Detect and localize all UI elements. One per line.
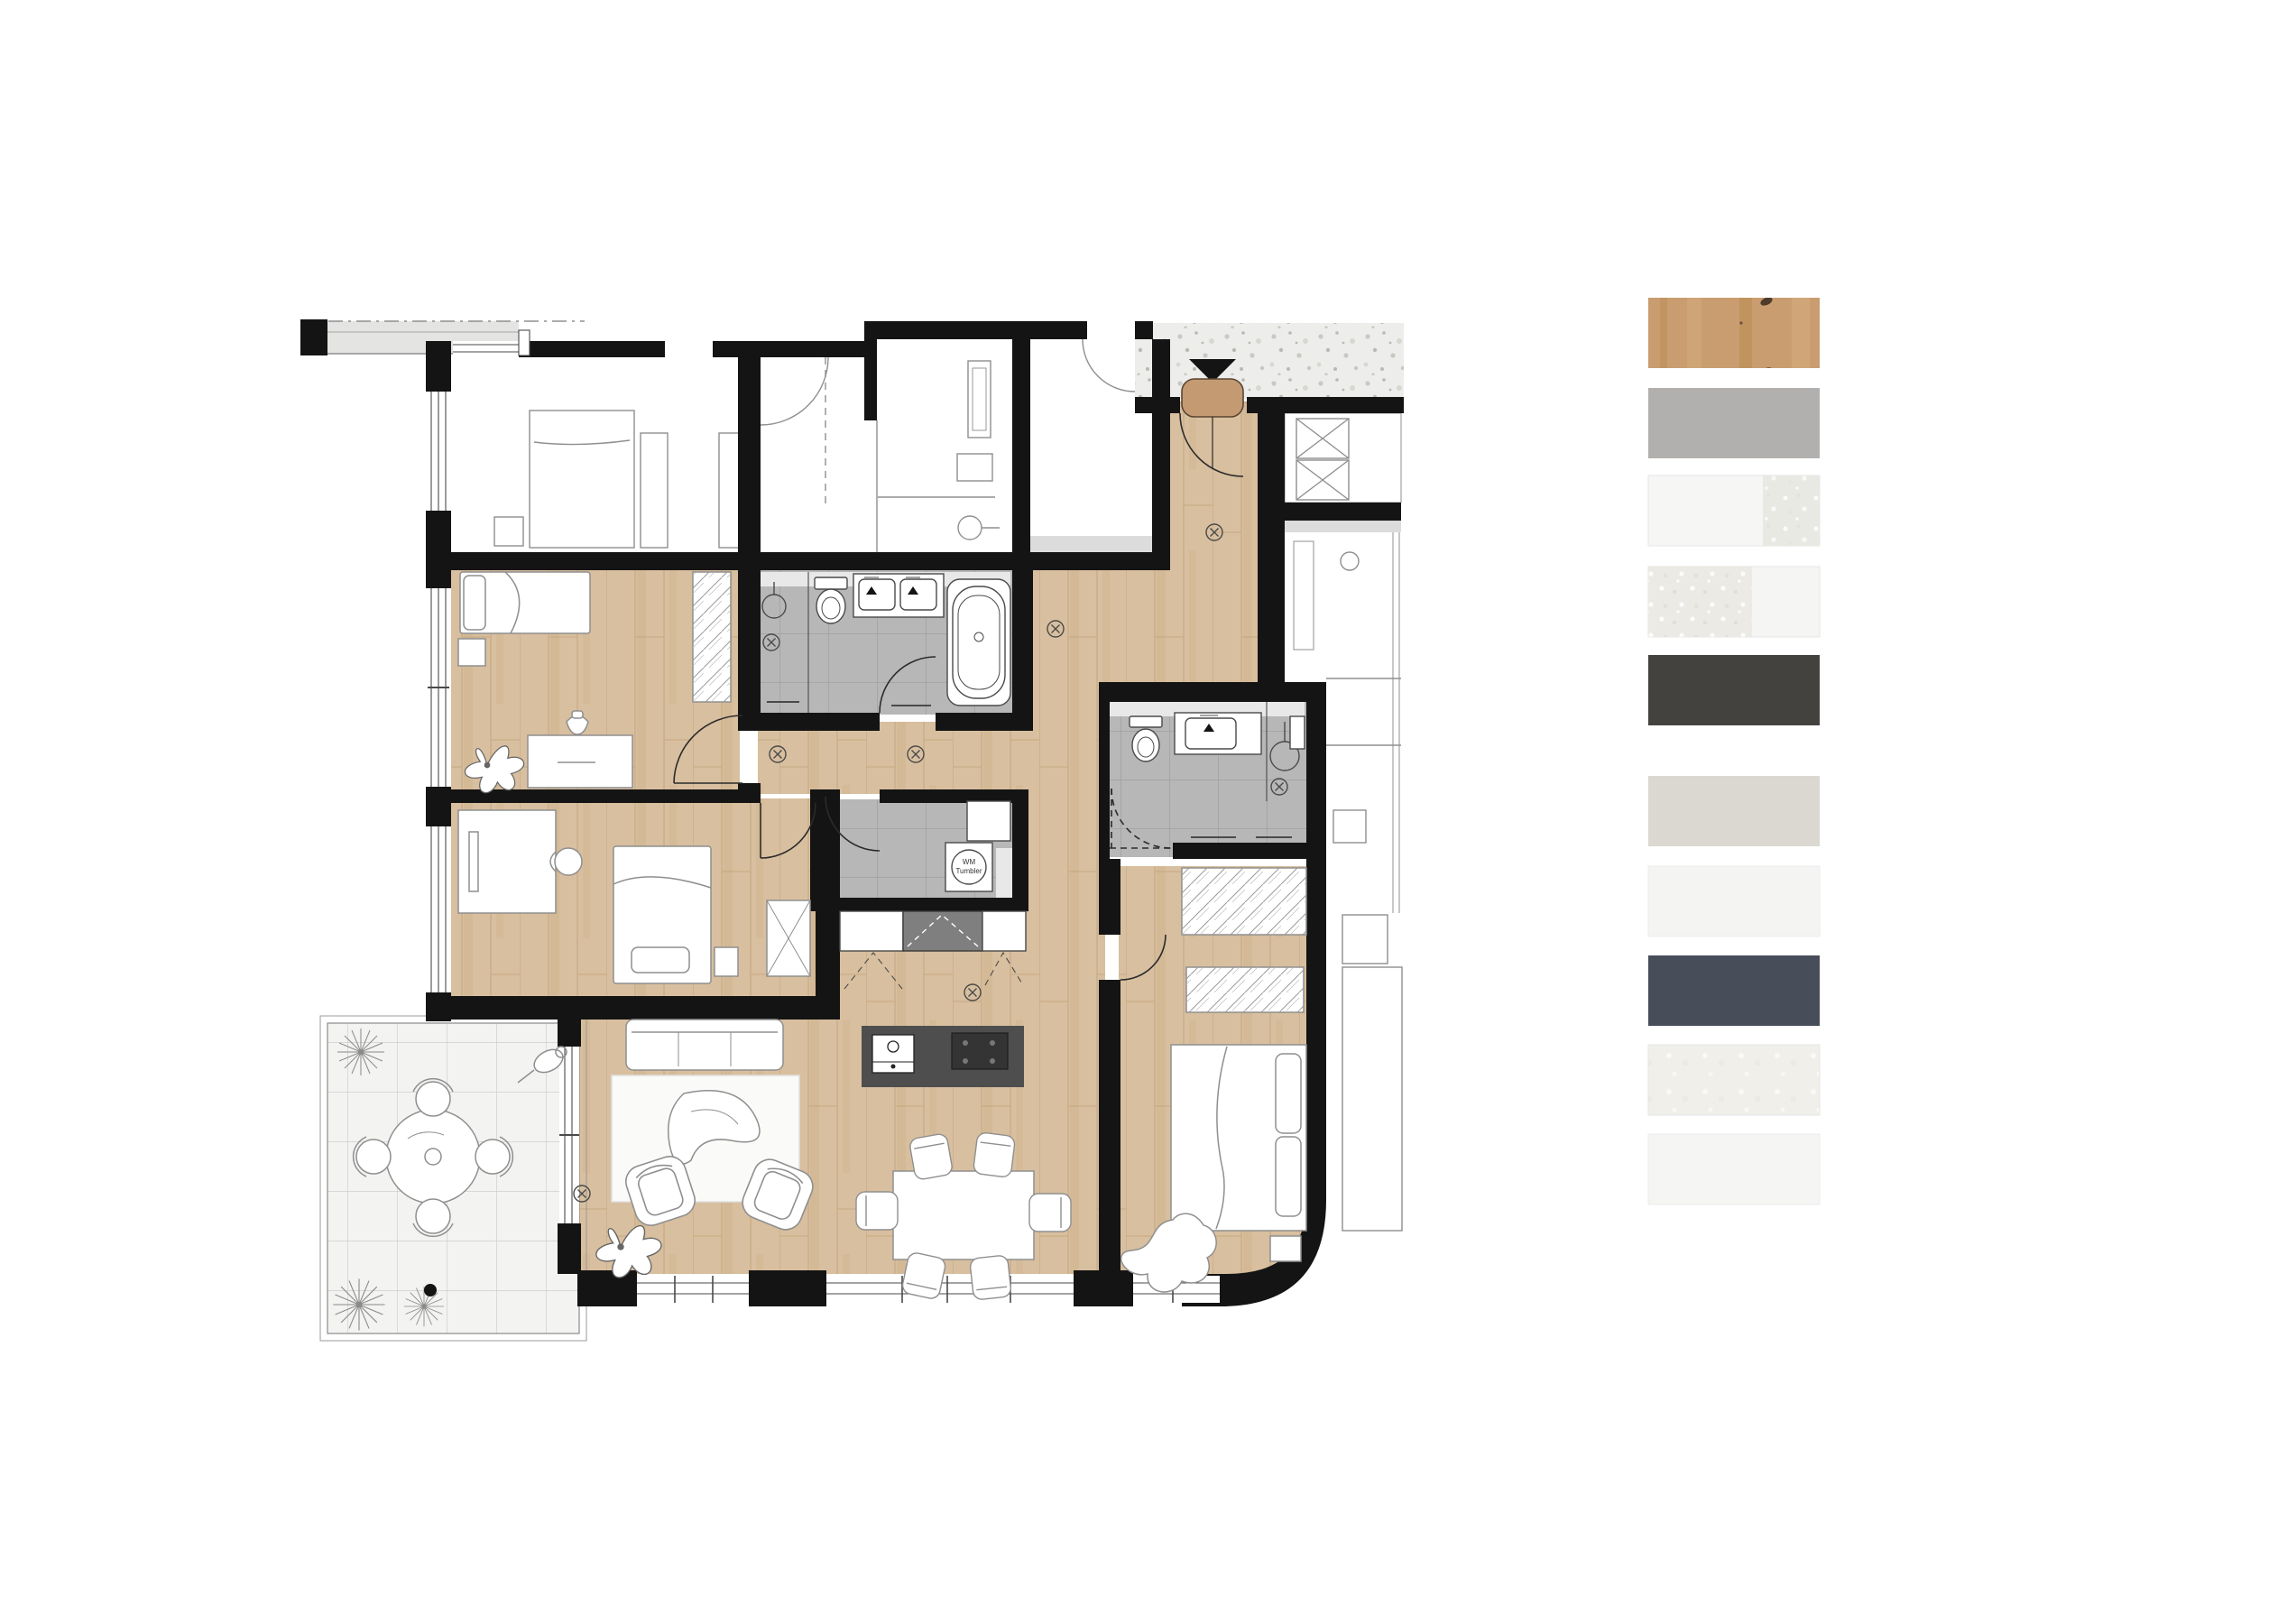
wall	[1099, 980, 1120, 1274]
nb-bed	[530, 411, 634, 548]
dining-chair	[973, 1132, 1015, 1178]
nb-room-outline	[1342, 967, 1402, 1231]
wall	[738, 783, 761, 803]
wall	[1099, 682, 1326, 702]
wall	[1173, 843, 1306, 859]
window-living-south-2	[826, 1276, 1074, 1303]
neighbor-right-lower	[1326, 621, 1402, 1231]
nb-closet	[641, 433, 668, 548]
vestibule-mat	[1030, 536, 1152, 552]
neighbor-bedroom	[494, 411, 742, 548]
wall	[864, 339, 877, 420]
pillow	[1276, 1137, 1301, 1216]
nb-bed-fold	[534, 440, 630, 445]
washing-machine: WM Tumbler	[945, 843, 992, 891]
shaft-x	[1296, 460, 1349, 500]
wall	[738, 357, 761, 552]
wardrobe-bedroom1	[693, 572, 731, 702]
wall	[1306, 682, 1326, 863]
neighbor-vestibule	[1030, 339, 1152, 552]
washer-label-1: WM	[963, 858, 976, 866]
floor-plan-page: WM Tumbler	[0, 0, 2287, 1624]
dining-chair	[856, 1192, 898, 1230]
dining-table	[893, 1171, 1034, 1260]
floor-corridor	[758, 722, 1028, 794]
double-vanity	[853, 574, 944, 617]
nb-box	[1342, 915, 1388, 964]
nb-box	[1333, 810, 1366, 843]
terrace-drain	[424, 1284, 437, 1296]
wall	[1012, 789, 1028, 911]
swatch-plaster-left	[1648, 567, 1820, 637]
window-bedroom-2	[428, 826, 449, 992]
swatch-plaster-white	[1648, 1045, 1820, 1115]
wall	[738, 570, 761, 715]
wall	[1012, 552, 1170, 570]
kitchen-counter	[840, 911, 903, 951]
shower-shelf	[1290, 716, 1305, 749]
nb-sink-small	[1341, 552, 1359, 570]
floor-entry	[1170, 401, 1259, 564]
wall	[1152, 339, 1170, 570]
nightstand	[1270, 1236, 1301, 1261]
nb-bath-cabinet-inner	[973, 368, 986, 430]
shaft-x	[1296, 419, 1349, 458]
window-neighbor-bedroom	[428, 392, 449, 511]
wall	[426, 341, 451, 392]
wall	[816, 789, 840, 1006]
wc-band	[996, 848, 1012, 899]
nightstand	[715, 947, 738, 976]
dining-chair	[901, 1251, 947, 1300]
dining-chair	[908, 1133, 953, 1181]
terrace-table	[386, 1110, 480, 1204]
wall	[1285, 503, 1401, 521]
nb-gray-band	[1285, 521, 1401, 532]
pillow	[464, 576, 485, 630]
wall	[864, 321, 1087, 339]
cooktop	[952, 1033, 1008, 1069]
washer-label-2: Tumbler	[955, 867, 982, 875]
terrace-door-living	[559, 1047, 579, 1223]
swatch-warm-gray	[1648, 776, 1820, 846]
sofa	[626, 1020, 783, 1070]
wall	[519, 341, 665, 357]
wall	[1306, 859, 1326, 1175]
wall	[738, 713, 880, 731]
dresser	[528, 735, 632, 788]
wall	[713, 341, 864, 357]
swatch-light-gray	[1648, 866, 1820, 937]
desk-monitor	[469, 832, 478, 891]
closet-box	[767, 900, 810, 976]
wall	[1099, 682, 1110, 863]
bench-bedroom3	[1186, 967, 1304, 1012]
nb-bath-cabinet	[968, 361, 991, 438]
toilet	[1130, 716, 1162, 761]
wall	[1074, 1270, 1133, 1306]
dining-chair	[970, 1255, 1012, 1300]
nb-nightstand	[494, 517, 523, 546]
wall	[426, 996, 840, 1020]
nightstand	[458, 639, 485, 666]
swatch-charcoal	[1648, 655, 1820, 725]
swatch-offwhite-textured-right	[1648, 475, 1820, 546]
wall	[300, 319, 327, 355]
wall	[558, 996, 581, 1047]
window-bedroom-1	[428, 588, 449, 787]
sink-drain	[891, 1065, 896, 1069]
wall	[1099, 859, 1120, 935]
neighbor-corridor-right	[1285, 413, 1401, 681]
kitchen-counter-dark	[903, 911, 982, 951]
pillow	[632, 947, 689, 973]
wall	[1258, 397, 1285, 686]
vanity	[1175, 713, 1261, 754]
toilet	[815, 577, 847, 623]
wall	[1012, 339, 1030, 552]
wall	[577, 1270, 637, 1306]
vestibule-door-arc	[1083, 339, 1135, 392]
wardrobe-bedroom3	[1182, 868, 1306, 935]
wc-shelf	[967, 801, 1010, 841]
swatch-gray	[1648, 388, 1820, 458]
nb-bath-sink	[958, 516, 982, 540]
wall	[426, 552, 1012, 570]
desk-chair	[550, 848, 582, 875]
wall	[558, 1223, 581, 1274]
terrazzo-walkway	[1135, 323, 1404, 399]
window-living-south-1	[637, 1276, 749, 1303]
bathtub	[947, 579, 1010, 706]
kitchen-island	[862, 1026, 1024, 1087]
pillow	[1276, 1054, 1301, 1133]
wall	[1135, 321, 1153, 339]
wall	[810, 898, 1027, 911]
neighbor-hallway	[761, 357, 828, 505]
nb-fixture	[1294, 541, 1314, 650]
wall	[1135, 397, 1180, 413]
kitchen-counter	[982, 911, 1026, 951]
swatch-wood	[1648, 298, 1820, 368]
swatch-near-white	[1648, 1134, 1820, 1204]
floor-hall-upper	[1026, 552, 1259, 686]
wall	[426, 789, 738, 803]
floor-plan-canvas: WM Tumbler	[0, 0, 2287, 1624]
neighbor-bathroom	[877, 361, 1000, 552]
dining-chair	[1029, 1194, 1071, 1232]
material-swatches	[1648, 298, 1820, 1204]
nb-hall-door-arc	[761, 357, 828, 425]
entry-door-leaf	[1182, 379, 1243, 417]
swatch-slate-blue	[1648, 955, 1820, 1026]
wall	[1012, 552, 1033, 722]
nb-bath-box	[957, 454, 992, 481]
wall	[749, 1270, 826, 1306]
wall	[426, 511, 451, 588]
